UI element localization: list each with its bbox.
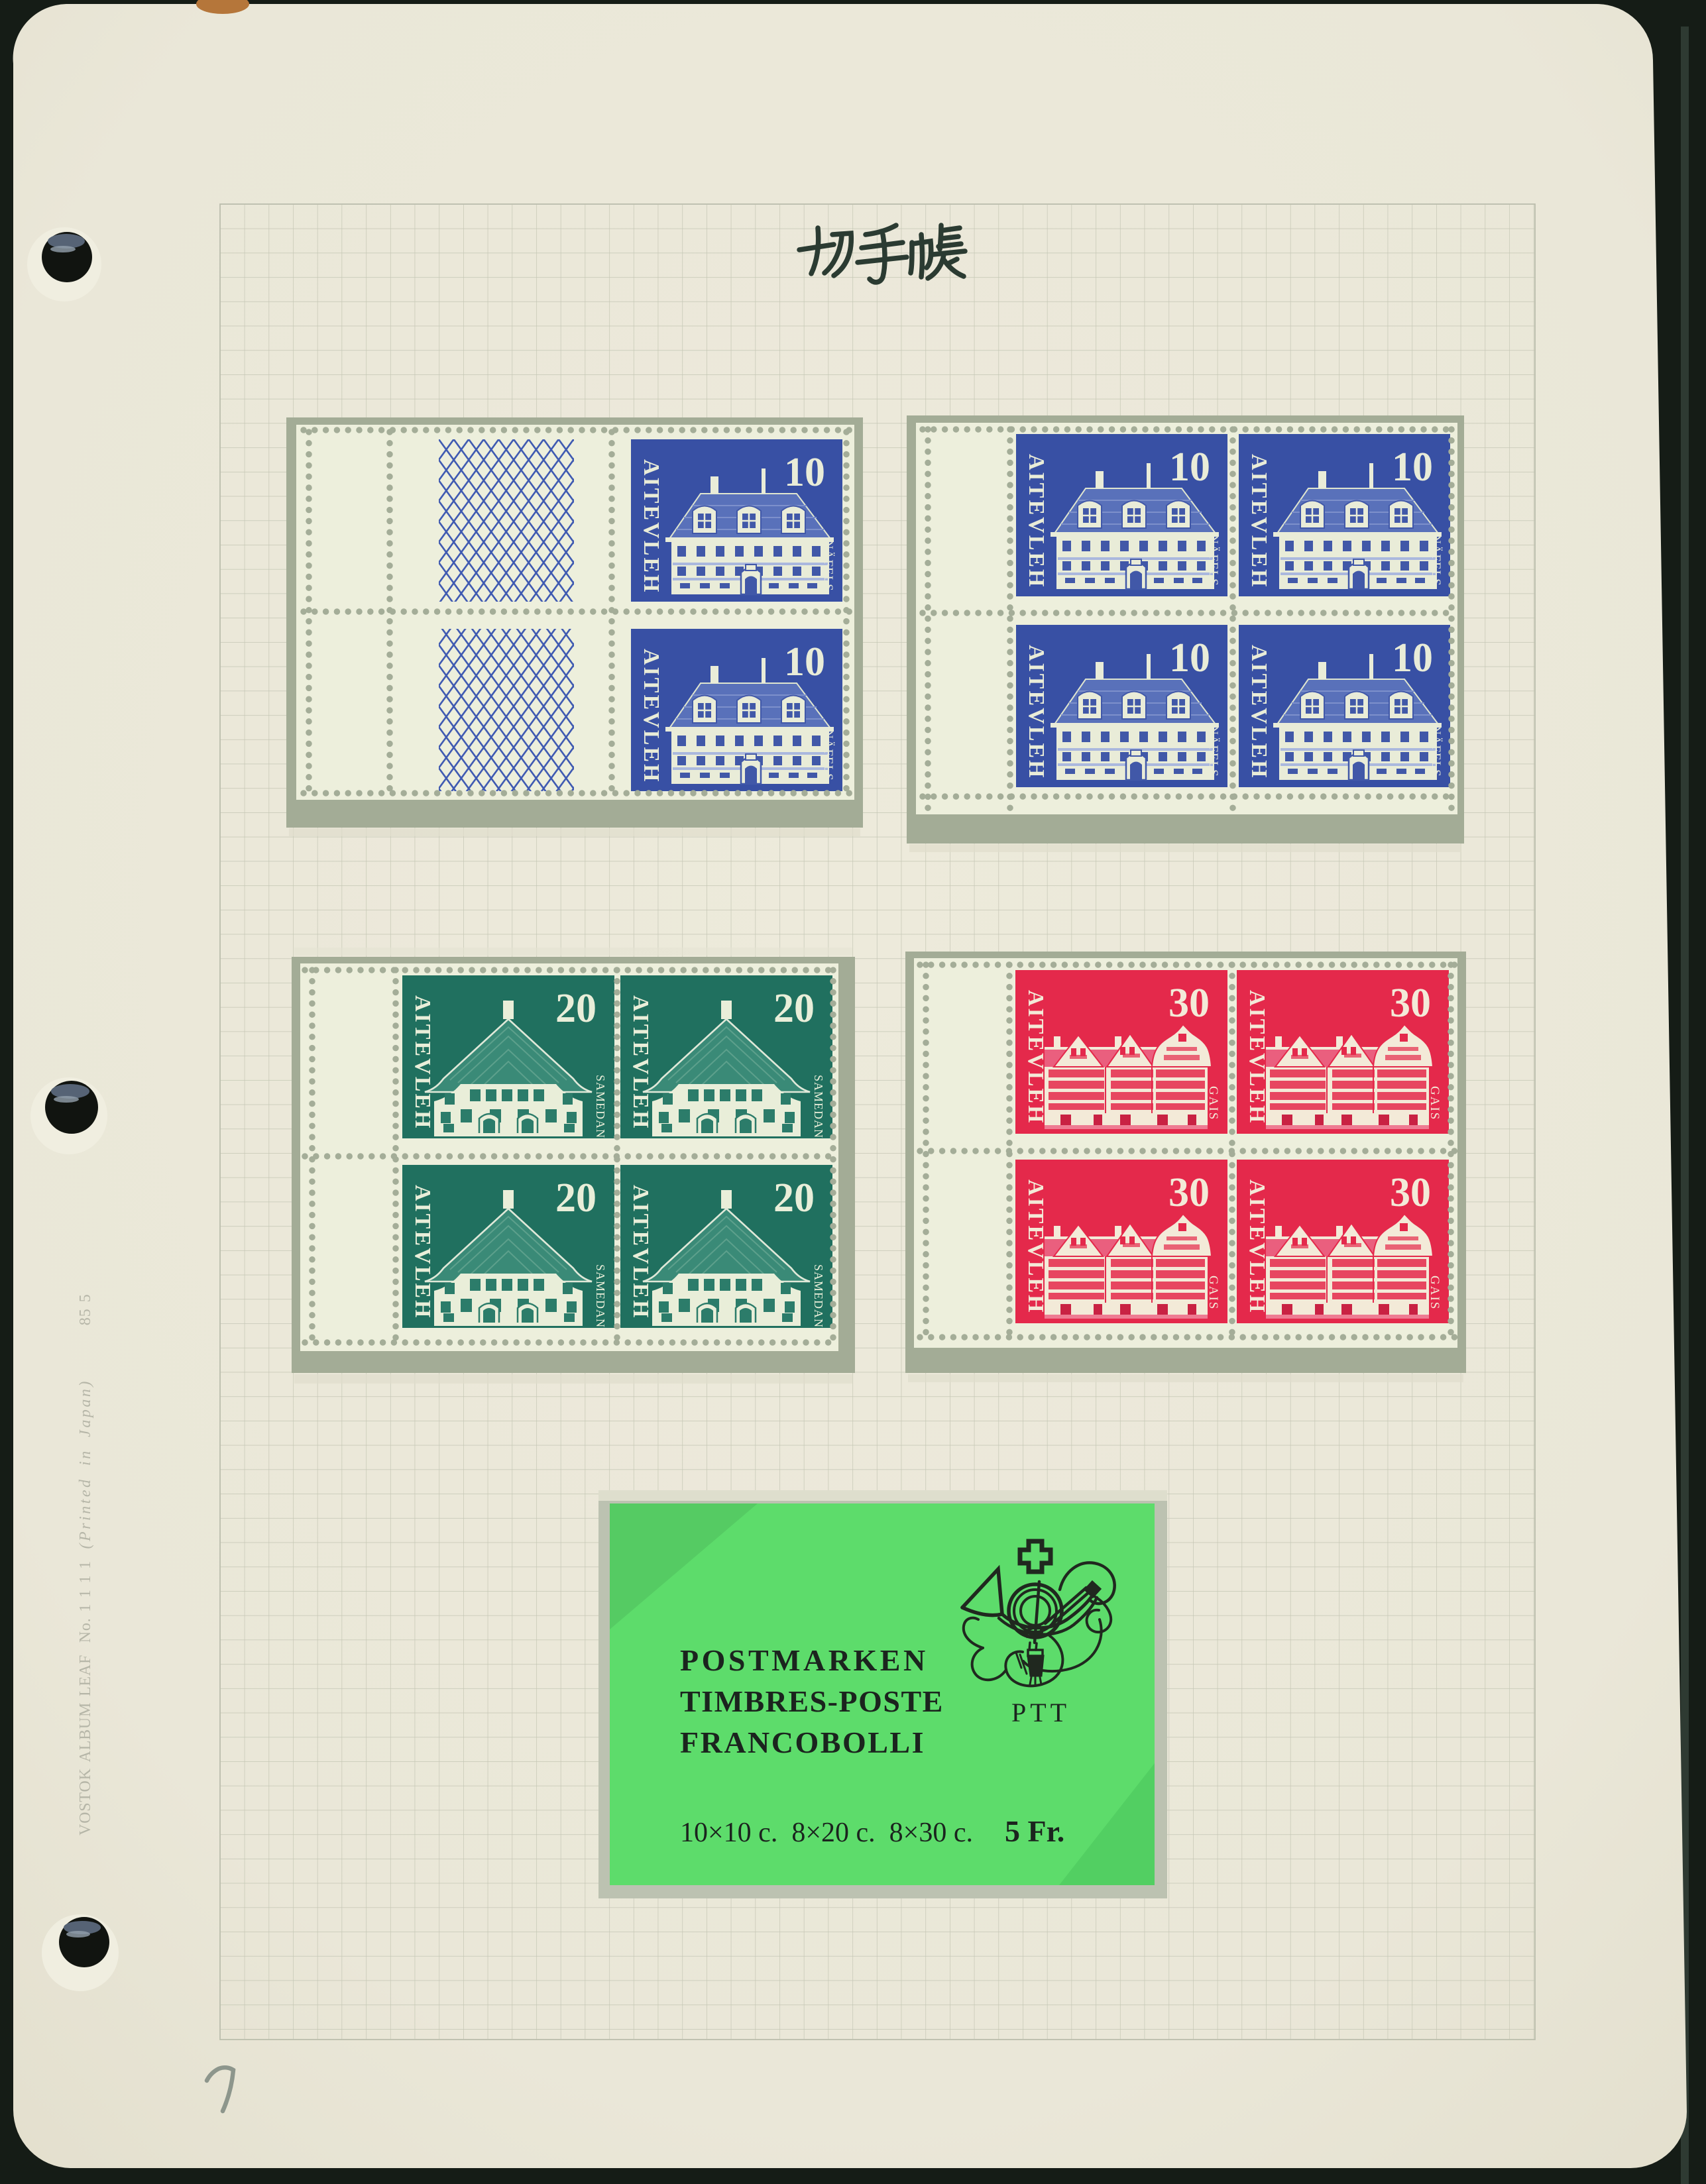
svg-text:PTT: PTT xyxy=(1011,1698,1070,1727)
svg-text:TIMBRES-POSTE: TIMBRES-POSTE xyxy=(680,1684,944,1718)
svg-text:5 Fr.: 5 Fr. xyxy=(1005,1814,1064,1848)
svg-text:VOSTOK ALBUM LEAF No. 1 1 1 1: VOSTOK ALBUM LEAF No. 1 1 1 1 (Printed i… xyxy=(77,1293,94,1835)
svg-text:10×10 c. 8×20 c. 8×30 c.: 10×10 c. 8×20 c. 8×30 c. xyxy=(680,1818,973,1848)
svg-text:FRANCOBOLLI: FRANCOBOLLI xyxy=(680,1725,925,1759)
svg-text:POSTMARKEN: POSTMARKEN xyxy=(680,1643,929,1677)
